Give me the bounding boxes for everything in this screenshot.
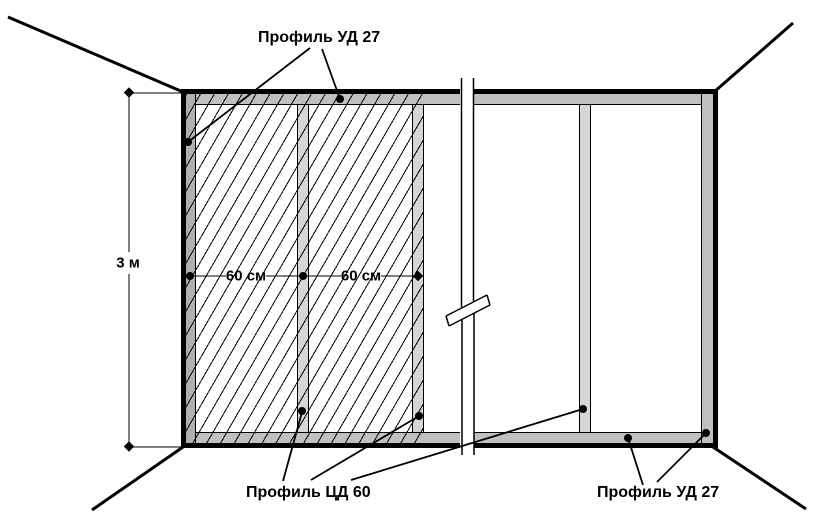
drywall-hatch-area xyxy=(186,94,424,443)
dimension-text-60cm-1: 60 см xyxy=(224,269,268,284)
label-profile-ud27-top: Профиль УД 27 xyxy=(258,30,380,46)
ud27-profile-right xyxy=(701,94,713,443)
dimension-text-3m: 3 м xyxy=(114,256,142,271)
label-profile-ud27-bottom-right: Профиль УД 27 xyxy=(597,485,719,501)
corner-line-top-left xyxy=(8,17,183,92)
corner-line-bottom-right xyxy=(713,447,806,509)
dimension-text-60cm-2: 60 см xyxy=(339,269,383,284)
dim-marker-bottom xyxy=(125,442,134,451)
label-profile-cd60: Профиль ЦД 60 xyxy=(246,485,371,501)
corner-line-bottom-left xyxy=(92,447,183,510)
cd60-profile-3 xyxy=(579,105,591,432)
ceiling-frame-diagram: Профиль УД 27 Профиль ЦД 60 Профиль УД 2… xyxy=(0,0,840,525)
dim-marker-top xyxy=(125,88,134,97)
corner-line-top-right xyxy=(714,23,793,92)
